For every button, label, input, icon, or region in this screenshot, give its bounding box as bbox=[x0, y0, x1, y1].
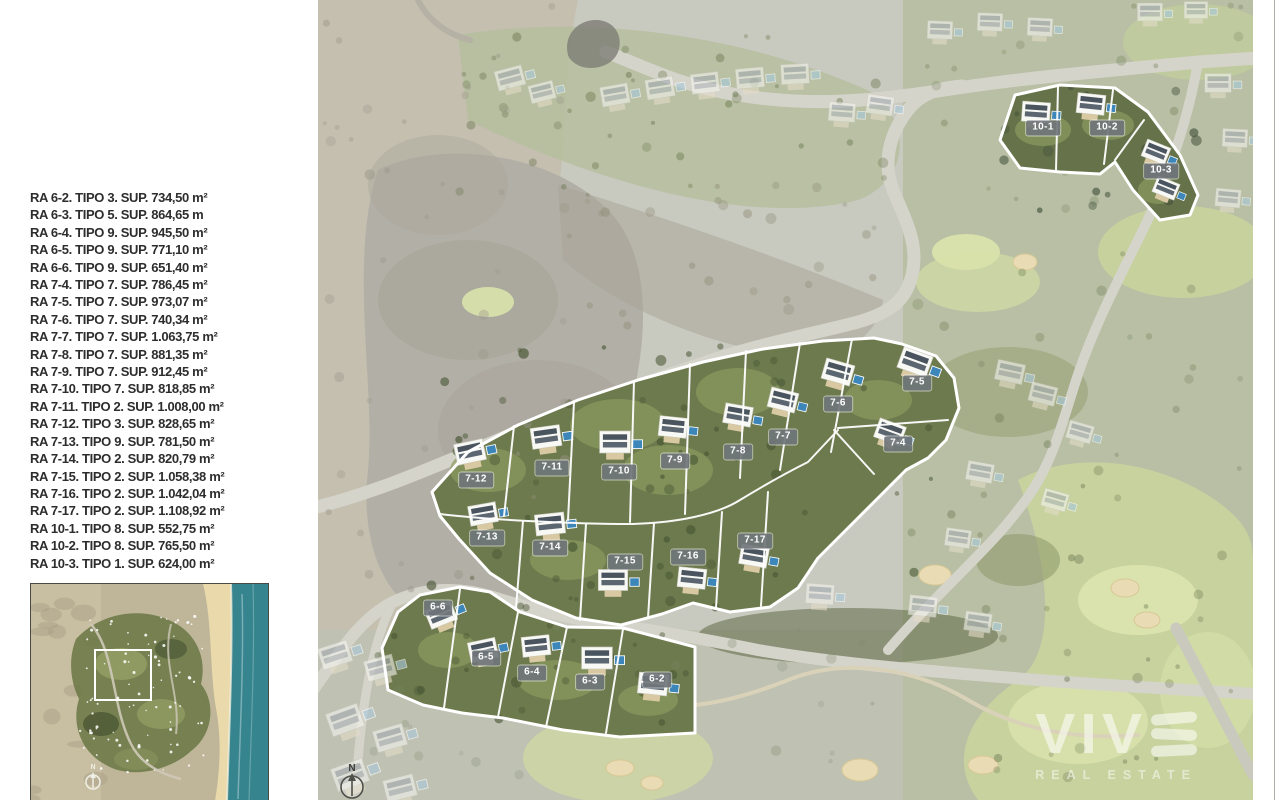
legend-item: RA 7-10. TIPO 7. SUP. 818,85 m² bbox=[30, 380, 315, 397]
legend-item: RA 7-6. TIPO 7. SUP. 740,34 m² bbox=[30, 311, 315, 328]
plot-label-chip: 7-9 bbox=[661, 454, 689, 469]
legend-item: RA 7-4. TIPO 7. SUP. 786,45 m² bbox=[30, 276, 315, 293]
legend-item: RA 7-9. TIPO 7. SUP. 912,45 m² bbox=[30, 363, 315, 380]
plot-label-chip: 7-6 bbox=[824, 397, 852, 412]
page-right-rule bbox=[1274, 0, 1275, 800]
legend-item: RA 6-4. TIPO 9. SUP. 945,50 m² bbox=[30, 224, 315, 241]
inset-aerial-image: N bbox=[31, 584, 268, 800]
legend-item: RA 6-3. TIPO 5. SUP. 864,65 m bbox=[30, 206, 315, 223]
site-plan-map: N 10-110-210-37-57-67-77-47-87-97-107-11… bbox=[318, 0, 1253, 800]
plot-label-chip: 7-14 bbox=[533, 541, 567, 556]
plot-label-chip: 7-16 bbox=[671, 550, 705, 565]
compass-north-label: N bbox=[348, 763, 355, 774]
plot-label-chip: 10-2 bbox=[1090, 121, 1124, 136]
legend-item: RA 7-12. TIPO 3. SUP. 828,65 m² bbox=[30, 415, 315, 432]
site-plan-page: RA 6-2. TIPO 3. SUP. 734,50 m²RA 6-3. TI… bbox=[0, 0, 1280, 800]
legend-item: RA 7-16. TIPO 2. SUP. 1.042,04 m² bbox=[30, 485, 315, 502]
plot-label-chip: 10-3 bbox=[1144, 164, 1178, 179]
plot-legend: RA 6-2. TIPO 3. SUP. 734,50 m²RA 6-3. TI… bbox=[30, 189, 315, 572]
legend-item: RA 6-6. TIPO 9. SUP. 651,40 m² bbox=[30, 259, 315, 276]
plot-label-chip: 6-2 bbox=[643, 673, 671, 688]
legend-item: RA 7-11. TIPO 2. SUP. 1.008,00 m² bbox=[30, 398, 315, 415]
legend-item: RA 7-14. TIPO 2. SUP. 820,79 m² bbox=[30, 450, 315, 467]
legend-item: RA 10-1. TIPO 8. SUP. 552,75 m² bbox=[30, 520, 315, 537]
legend-item: RA 7-7. TIPO 7. SUP. 1.063,75 m² bbox=[30, 328, 315, 345]
legend-item: RA 10-3. TIPO 1. SUP. 624,00 m² bbox=[30, 555, 315, 572]
plot-label-chip: 6-6 bbox=[424, 601, 452, 616]
plot-label-chip: 6-4 bbox=[518, 666, 546, 681]
plot-label-chip: 10-1 bbox=[1026, 121, 1060, 136]
legend-item: RA 7-15. TIPO 2. SUP. 1.058,38 m² bbox=[30, 468, 315, 485]
location-inset: N bbox=[30, 583, 269, 800]
plot-label-chip: 7-7 bbox=[769, 430, 797, 445]
legend-item: RA 7-8. TIPO 7. SUP. 881,35 m² bbox=[30, 346, 315, 363]
golf-green bbox=[932, 234, 1000, 270]
legend-item: RA 7-17. TIPO 2. SUP. 1.108,92 m² bbox=[30, 502, 315, 519]
legend-item: RA 7-5. TIPO 7. SUP. 973,07 m² bbox=[30, 293, 315, 310]
plot-label-chip: 7-4 bbox=[884, 437, 912, 452]
plot-label-chip: 7-12 bbox=[459, 473, 493, 488]
legend-item: RA 7-13. TIPO 9. SUP. 781,50 m² bbox=[30, 433, 315, 450]
svg-text:N: N bbox=[90, 764, 95, 771]
plot-label-chip: 7-5 bbox=[903, 376, 931, 391]
tree-band bbox=[698, 608, 998, 664]
plot-label-chip: 7-10 bbox=[602, 465, 636, 480]
plot-label-chip: 7-15 bbox=[608, 555, 642, 570]
legend-item: RA 10-2. TIPO 8. SUP. 765,50 m² bbox=[30, 537, 315, 554]
plot-label-chip: 6-3 bbox=[576, 675, 604, 690]
plot-label-chip: 7-17 bbox=[738, 534, 772, 549]
plot-label-chip: 6-5 bbox=[472, 651, 500, 666]
plot-label-chip: 7-8 bbox=[724, 445, 752, 460]
plot-label-chip: 7-11 bbox=[535, 461, 568, 476]
legend-item: RA 6-5. TIPO 9. SUP. 771,10 m² bbox=[30, 241, 315, 258]
plot-label-chip: 7-13 bbox=[470, 531, 504, 546]
legend-item: RA 6-2. TIPO 3. SUP. 734,50 m² bbox=[30, 189, 315, 206]
inset-sea bbox=[227, 584, 268, 800]
